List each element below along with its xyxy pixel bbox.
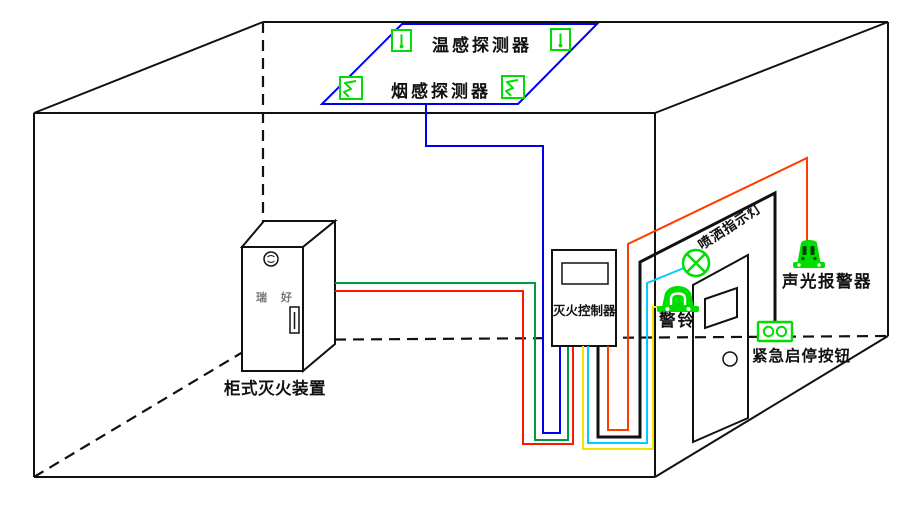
temp-detector-probe-dot xyxy=(400,45,404,49)
wire-cabinet-green xyxy=(335,283,568,440)
extinguisher-cabinet: 瑞 好 柜式灭火装置 xyxy=(224,221,335,398)
sound-light-alarm-label: 声光报警器 xyxy=(781,271,872,291)
door-knob xyxy=(723,352,737,366)
fire-controller: 灭火控制器 xyxy=(552,250,616,346)
sound-light-alarm-slot xyxy=(811,246,815,255)
emergency-button: 紧急启停按钮 xyxy=(752,322,851,365)
ceiling-detector-zone: 温感探测器 烟感探测器 xyxy=(322,24,597,104)
cabinet-logo-icon xyxy=(264,252,278,266)
temp-detector-label: 温感探测器 xyxy=(432,35,532,56)
alarm-bell-label: 警铃 xyxy=(658,310,696,330)
emergency-button-label: 紧急启停按钮 xyxy=(752,346,851,365)
hidden-floor-left-edge xyxy=(34,340,263,477)
emergency-button-circle xyxy=(764,327,773,336)
wire-cabinet-red xyxy=(335,291,573,444)
controller-display xyxy=(562,263,608,284)
sound-light-alarm-base-dot xyxy=(817,263,820,266)
door-outline xyxy=(693,255,748,442)
sound-light-alarm-slot xyxy=(803,246,807,255)
wire-detector-loop-blue xyxy=(426,104,560,433)
sound-light-alarm: 声光报警器 xyxy=(781,240,872,291)
emergency-button-circle xyxy=(777,327,786,336)
cabinet-brand-text: 瑞 好 xyxy=(256,290,297,304)
temp-detector-probe-dot xyxy=(559,44,563,48)
ceiling-left-edge xyxy=(34,22,263,113)
schematic-canvas: 温感探测器 烟感探测器 瑞 好 柜式灭火装置 灭火控制器 xyxy=(0,0,910,505)
smoke-detector-label: 烟感探测器 xyxy=(391,81,491,102)
sound-light-alarm-icon xyxy=(797,240,821,265)
sound-light-alarm-dot xyxy=(813,257,816,260)
wire-alarm-orange xyxy=(608,158,807,430)
cabinet-side-face xyxy=(303,221,335,371)
door-window xyxy=(705,288,737,328)
cabinet-label: 柜式灭火装置 xyxy=(224,378,326,398)
sound-light-alarm-dot xyxy=(801,257,804,260)
door xyxy=(693,255,748,442)
sound-light-alarm-base-dot xyxy=(797,263,800,266)
fire-suppression-schematic: 温感探测器 烟感探测器 瑞 好 柜式灭火装置 灭火控制器 xyxy=(0,0,910,505)
ceiling-right-edge xyxy=(655,22,888,113)
controller-label: 灭火控制器 xyxy=(552,303,616,318)
alarm-bell-icon xyxy=(662,286,694,307)
